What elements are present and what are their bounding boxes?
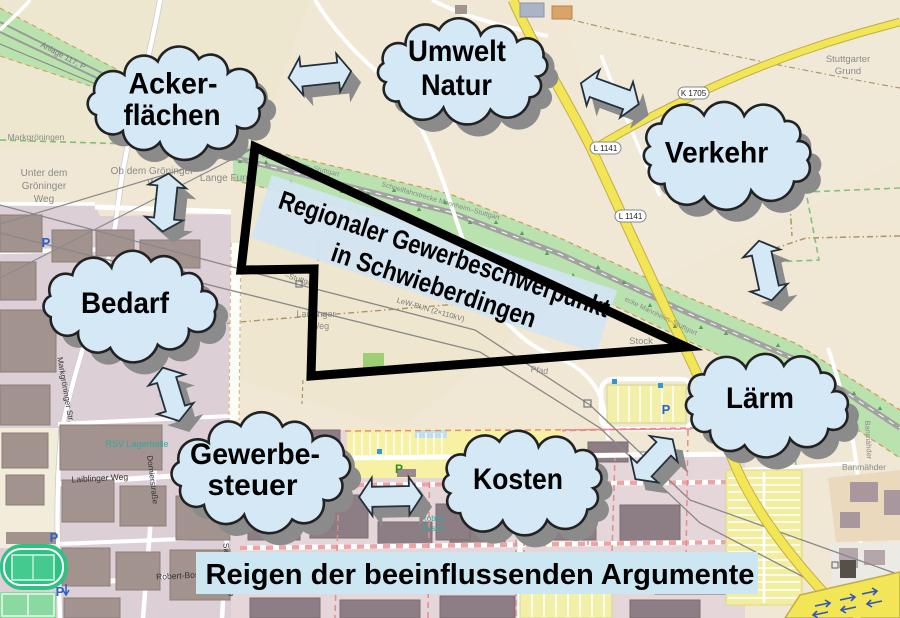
svg-text:P: P [395, 462, 403, 476]
svg-text:Verkehr: Verkehr [665, 137, 769, 170]
svg-text:Lärm: Lärm [726, 382, 794, 415]
svg-text:Markgröningen: Markgröningen [8, 132, 65, 142]
svg-text:Natur: Natur [421, 69, 492, 102]
svg-text:P: P [50, 530, 59, 545]
svg-text:L 1141: L 1141 [619, 212, 643, 221]
svg-text:P: P [662, 402, 671, 417]
svg-text:flächen: flächen [124, 99, 221, 132]
svg-text:Weg: Weg [34, 194, 54, 205]
svg-text:Reigen der beeinflussenden Arg: Reigen der beeinflussenden Argumente [206, 559, 755, 591]
svg-text:Banmähder: Banmähder [842, 462, 886, 472]
svg-text:Gröninger: Gröninger [22, 181, 67, 192]
svg-text:Bosch: Bosch [422, 524, 444, 533]
svg-text:K 1705: K 1705 [681, 89, 707, 98]
svg-text:Acker-: Acker- [129, 68, 218, 101]
svg-text:L 1141: L 1141 [594, 144, 618, 153]
svg-text:P: P [42, 235, 51, 250]
svg-text:Unter dem: Unter dem [21, 168, 68, 179]
svg-text:Kosten: Kosten [473, 463, 563, 496]
svg-text:Grund: Grund [835, 66, 861, 77]
svg-text:Stuttgarter: Stuttgarter [826, 54, 870, 65]
svg-text:RSV Lagerhalle: RSV Lagerhalle [105, 439, 168, 449]
svg-text:Bedarf: Bedarf [81, 287, 169, 320]
svg-text:Gewerbe-: Gewerbe- [190, 438, 320, 471]
svg-text:steuer: steuer [208, 469, 299, 502]
svg-text:Umwelt: Umwelt [408, 35, 506, 68]
